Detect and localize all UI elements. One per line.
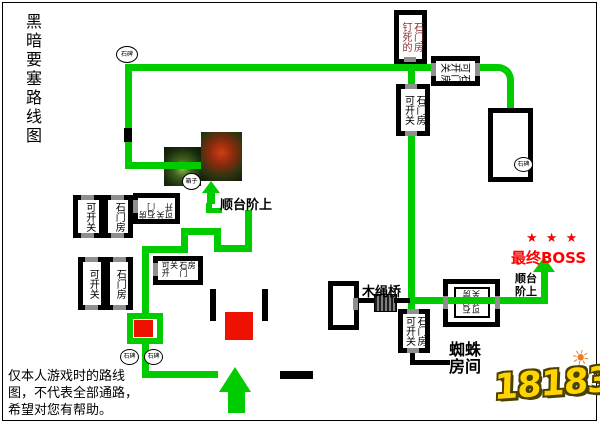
room-switch-stone-door-junction: 可开关 石门房 bbox=[398, 309, 430, 353]
door-gap bbox=[113, 305, 126, 310]
entrance-arrow-up bbox=[219, 367, 251, 392]
marker-label: 箱子 bbox=[185, 179, 197, 185]
stone-tablet-marker: 石碑 bbox=[120, 349, 139, 365]
door-gap bbox=[81, 195, 94, 200]
door-gap bbox=[111, 233, 124, 238]
room-label: 石门房 bbox=[113, 202, 124, 232]
route-path-segment bbox=[408, 133, 415, 309]
room-label: 钉死的 bbox=[400, 22, 411, 52]
door-gap bbox=[85, 305, 98, 310]
room-label: 可开关 bbox=[402, 95, 413, 125]
spider-connector bbox=[410, 360, 450, 365]
room-switch-stone-door-rotated: 可开关 石门房 bbox=[431, 56, 480, 86]
18183-logo: ☀ 18183 bbox=[492, 348, 596, 420]
spider-room-line: 房间 bbox=[449, 359, 481, 376]
chest-marker: 箱子 bbox=[182, 173, 201, 190]
room-label: 石门房 bbox=[415, 316, 426, 346]
wood-rope-bridge-label: 木绳桥 bbox=[362, 281, 401, 300]
stone-tablet-marker: 石碑 bbox=[116, 46, 138, 63]
room-switch: 可开关 bbox=[73, 195, 104, 238]
route-path-segment bbox=[541, 270, 548, 304]
stairs-up-label: 顺台阶上 bbox=[220, 194, 272, 213]
room-label: 可开关 bbox=[403, 316, 414, 346]
stairs-up-line: 顺台 bbox=[515, 273, 537, 286]
wall-segment bbox=[210, 289, 216, 321]
room-label: 石门房 bbox=[441, 72, 471, 83]
room-label: 石门房 bbox=[411, 22, 422, 52]
door-tick bbox=[124, 128, 132, 142]
door-gap bbox=[111, 195, 124, 200]
wall-segment bbox=[262, 289, 268, 321]
room-switch-stone-door: 可开关 石门房 bbox=[396, 84, 430, 136]
red-marker-large bbox=[225, 312, 253, 340]
stairs-up-line: 阶上 bbox=[515, 286, 537, 299]
spider-room-label: 蜘蛛 房间 bbox=[449, 342, 481, 376]
boss-stars: ★ ★ ★ bbox=[526, 231, 579, 246]
route-path-segment bbox=[142, 371, 218, 378]
note-line: 图，不代表全部通路， bbox=[8, 386, 138, 403]
route-path-segment bbox=[125, 64, 132, 168]
stone-tablet-marker: 石碑 bbox=[514, 157, 533, 172]
room-label: 可开关 bbox=[157, 198, 174, 219]
room-switch: 可开关 bbox=[78, 257, 106, 310]
door-gap bbox=[404, 57, 416, 62]
room-label: 石门房 bbox=[414, 95, 425, 125]
map-canvas: 黑暗要塞路线图 仅本人游戏时的路线 图，不代表全部通路， 希望对您有帮助。 bbox=[0, 0, 600, 424]
route-path-segment bbox=[125, 64, 431, 71]
route-through-room bbox=[448, 297, 495, 304]
door-gap bbox=[353, 298, 358, 310]
room-label: 可开关 bbox=[161, 261, 178, 280]
note-text: 仅本人游戏时的路线 图，不代表全部通路， 希望对您有帮助。 bbox=[8, 369, 138, 420]
door-gap bbox=[405, 84, 417, 89]
entrance-arrow-shaft bbox=[228, 390, 245, 413]
room-stone-door: 石门房 bbox=[105, 257, 133, 310]
room-nailed-stone-door: 钉死的 石门房 bbox=[394, 10, 427, 64]
door-gap bbox=[153, 263, 158, 276]
room-label: 可开关 bbox=[83, 202, 94, 232]
room-stone-door: 石门房 bbox=[103, 195, 133, 238]
room-label: 石门房 bbox=[114, 269, 125, 299]
route-path-segment bbox=[125, 162, 203, 169]
marker-label: 石碑 bbox=[147, 354, 159, 360]
door-gap bbox=[407, 309, 419, 314]
wall-segment bbox=[280, 371, 313, 379]
room-switch-stone-door-mid: 可开关 石门房 bbox=[153, 256, 203, 285]
page-title: 黑暗要塞路线图 bbox=[20, 13, 44, 146]
stairs-up-label-right: 顺台 阶上 bbox=[515, 273, 537, 298]
door-gap bbox=[495, 296, 500, 309]
screenshot-thumbnail-red-demon bbox=[201, 132, 242, 181]
door-gap bbox=[405, 131, 417, 136]
room-label: 可开关 bbox=[87, 269, 98, 299]
room-label: 石门房 bbox=[179, 261, 196, 280]
stone-tablet-marker: 石碑 bbox=[144, 349, 163, 365]
door-gap bbox=[475, 63, 480, 76]
door-gap bbox=[81, 233, 94, 238]
marker-label: 石碑 bbox=[121, 52, 133, 58]
note-line: 仅本人游戏时的路线 bbox=[8, 369, 138, 386]
marker-label: 石碑 bbox=[517, 162, 529, 168]
route-path-segment bbox=[142, 249, 149, 315]
route-path-curve bbox=[480, 64, 514, 112]
door-gap bbox=[113, 257, 126, 262]
door-gap bbox=[133, 200, 138, 213]
door-gap bbox=[407, 348, 419, 353]
room-switch-stone-door-upsidedown: 可开关 石门房 bbox=[133, 193, 180, 224]
logo-text: 18183 bbox=[493, 360, 600, 408]
red-marker-small bbox=[134, 320, 153, 337]
final-boss-label: 最终BOSS bbox=[511, 247, 586, 268]
room-label: 可开关 bbox=[441, 60, 471, 71]
route-path-segment bbox=[245, 210, 252, 252]
door-gap bbox=[85, 257, 98, 262]
room-label: 石门房 bbox=[139, 198, 156, 219]
note-line: 希望对您有帮助。 bbox=[8, 403, 138, 420]
door-gap bbox=[431, 63, 436, 76]
marker-label: 石碑 bbox=[123, 354, 135, 360]
